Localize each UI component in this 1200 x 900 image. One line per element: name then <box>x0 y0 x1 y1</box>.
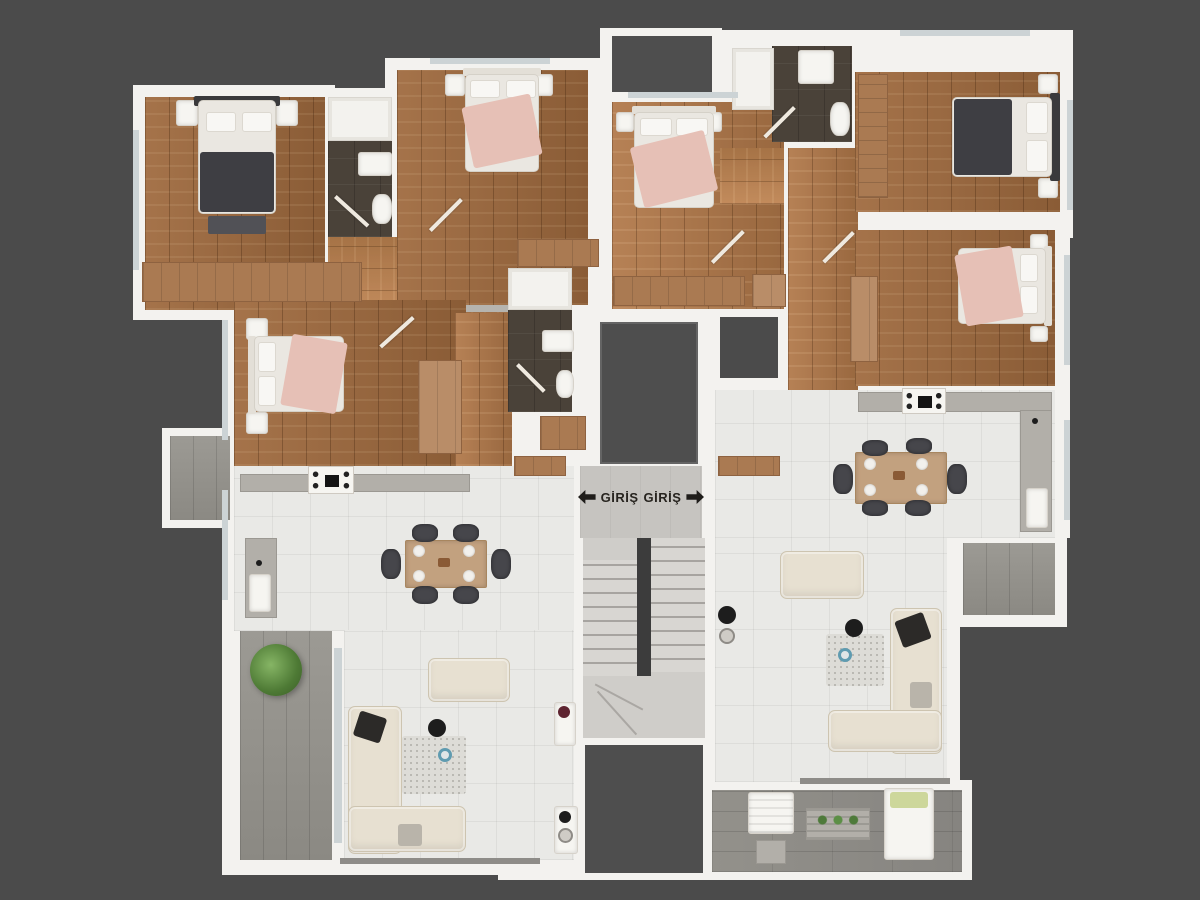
entrance-label-right: GİRİŞ <box>644 490 682 505</box>
balcony-lounge-chair <box>748 792 794 834</box>
bedroom3-dresser <box>613 276 745 306</box>
kitchen-left-counter <box>240 474 470 492</box>
bed3-pillow <box>640 118 672 136</box>
window-bedroom3 <box>628 92 738 98</box>
bed1-pillow <box>242 112 272 132</box>
void-below-stairs <box>585 745 703 873</box>
plate <box>864 484 876 496</box>
bed4-blanket <box>954 99 1012 175</box>
bath2-toilet <box>556 370 574 398</box>
balcony-door-left <box>334 648 342 843</box>
nightstand <box>1038 74 1058 94</box>
dining-chair <box>491 549 511 579</box>
kitchen-right-faucet <box>1032 418 1038 424</box>
stairs-divider <box>637 538 651 676</box>
window-bedroom2 <box>430 58 550 64</box>
hallway-left-vertical-floor <box>455 313 512 466</box>
bedroom2-dresser <box>517 239 599 267</box>
window-bedroom3L <box>222 320 228 440</box>
bedroom1-dresser <box>142 262 362 302</box>
dining-chair <box>862 500 888 516</box>
bench-plants <box>812 814 864 826</box>
nightstand <box>445 74 465 96</box>
stairs-right-flight <box>651 538 705 672</box>
bath1-toilet <box>372 194 392 224</box>
hallway-right-floor-top <box>720 148 784 204</box>
plate <box>463 570 475 582</box>
bath1-shower <box>328 97 392 141</box>
loveseat-left <box>428 658 510 702</box>
bath2-shower <box>508 268 572 310</box>
decor-item <box>559 811 571 823</box>
dining-chair <box>862 440 888 456</box>
threshold-left <box>540 416 586 450</box>
dining-chair <box>906 438 932 454</box>
plate <box>463 545 475 557</box>
entrance-label-left: GİRİŞ <box>601 490 639 505</box>
plate <box>916 484 928 496</box>
plate <box>413 545 425 557</box>
dining-chair <box>453 524 479 542</box>
plate <box>413 570 425 582</box>
kitchen-right-counter <box>858 392 1052 412</box>
nightstand <box>1030 326 1048 342</box>
rug-right <box>826 634 884 686</box>
roof-shaft <box>612 36 712 92</box>
window-bedroom5 <box>1064 255 1070 365</box>
terrace-right-small <box>963 543 1055 615</box>
nightstand <box>246 412 268 434</box>
bath3-shower <box>732 48 774 110</box>
kitchen-left-cooktop <box>308 466 354 494</box>
dining-chair <box>947 464 967 494</box>
decor-plate <box>558 828 573 843</box>
bed4-pillow <box>1026 140 1048 172</box>
table-centerpiece <box>893 471 905 480</box>
stairs-left-flight <box>583 560 637 676</box>
rug-left <box>402 736 466 794</box>
kitchen-right-sink <box>1026 488 1048 528</box>
entrance-arrow-right-icon <box>686 490 704 504</box>
decor-plant-pot <box>718 606 736 624</box>
threshold-left-step <box>514 456 566 476</box>
bed3L-pillow <box>258 342 276 372</box>
nightstand <box>1038 178 1058 198</box>
window-bedroom4-side <box>1067 100 1073 210</box>
bed1-blanket <box>200 152 274 212</box>
decor-vase <box>558 706 570 718</box>
plate <box>916 458 928 470</box>
dining-chair <box>833 464 853 494</box>
dining-chair <box>412 586 438 604</box>
coffee-table-right <box>845 619 863 637</box>
decor-side-table <box>719 628 735 644</box>
entrance-corridor: GİRİŞ GİRİŞ <box>578 482 704 512</box>
bedroom3-rug <box>752 274 786 307</box>
bedroom5-rug <box>850 276 878 362</box>
window-sill-right <box>800 778 950 784</box>
window-living-left <box>222 490 228 600</box>
bed5-blanket <box>954 246 1024 327</box>
sofa-left-cushion <box>398 824 422 846</box>
threshold-right-step <box>718 456 780 476</box>
balcony-plant <box>250 644 302 696</box>
elevator-shaft <box>600 322 698 464</box>
bedroom4-wardrobe <box>858 74 888 198</box>
balcony-side-table <box>756 840 786 864</box>
loveseat-right <box>780 551 864 599</box>
decor-bowl-left <box>438 748 452 762</box>
table-centerpiece <box>438 558 450 567</box>
dining-chair <box>381 549 401 579</box>
plate <box>864 458 876 470</box>
window-bedroom1 <box>133 130 139 270</box>
terrace-left-small <box>170 436 230 520</box>
coffee-table-left <box>428 719 446 737</box>
bed1-bench <box>208 216 266 234</box>
bath3-vanity <box>798 50 834 84</box>
dining-chair <box>412 524 438 542</box>
bed4-pillow <box>1026 102 1048 134</box>
entrance-arrow-left-icon <box>578 490 596 504</box>
kitchen-left-faucet <box>256 560 262 566</box>
dining-chair <box>453 586 479 604</box>
kitchen-right-cooktop <box>902 388 946 414</box>
cooktop-center <box>325 475 339 487</box>
sofa-right-cushion <box>910 682 932 708</box>
window-bedroom4-top <box>900 30 1030 36</box>
bed2-pillow <box>470 80 500 98</box>
decor-bowl-right <box>838 648 852 662</box>
bath3-toilet <box>830 102 850 136</box>
bed3L-pillow <box>258 376 276 406</box>
sofa-right-horizontal <box>828 710 942 752</box>
floorplan-scene: GİRİŞ GİRİŞ <box>0 0 1200 900</box>
bedroom3L-rug <box>418 360 462 454</box>
bed5-pillow <box>1020 254 1038 282</box>
nightstand <box>616 112 634 132</box>
sunbed-pillow <box>890 792 928 808</box>
dining-chair <box>905 500 931 516</box>
kitchen-left-sink <box>249 574 271 612</box>
window-living-right <box>1064 420 1070 520</box>
bed1-pillow <box>206 112 236 132</box>
window-sill-left <box>340 858 540 864</box>
bath1-vanity <box>358 152 392 176</box>
cooktop-center <box>918 396 932 408</box>
bath2-vanity <box>542 330 574 352</box>
